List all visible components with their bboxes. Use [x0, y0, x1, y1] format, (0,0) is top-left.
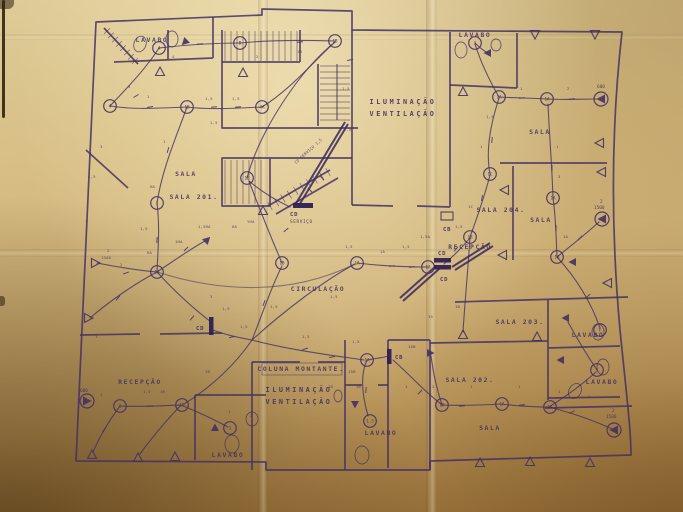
wire-annotation: 1,5 — [402, 244, 410, 249]
conductor-tick — [167, 147, 169, 153]
fan-blade-icon — [83, 397, 92, 406]
light-outlet-code: 1B — [184, 105, 190, 110]
shaft-title: VENTILAÇÃO — [266, 397, 333, 406]
wire-annotation: 1 — [518, 384, 521, 389]
switch-arrow-symbol — [569, 258, 577, 266]
wire-annotation: 1,5 — [302, 334, 310, 339]
shaft-title: ILUMINAÇÃO — [370, 97, 437, 106]
fan-blade-icon — [610, 426, 619, 435]
light-outlet-code: 1A — [554, 255, 560, 260]
wire-annotation: HA — [232, 224, 238, 229]
panel-label: CB — [443, 227, 451, 233]
wall-outlet-triangle — [156, 67, 165, 76]
conductor-tick — [459, 406, 465, 407]
light-outlet-code: 1B — [439, 403, 445, 408]
wall-outlet-triangle — [88, 450, 97, 459]
panel-label: CD — [438, 251, 446, 257]
panel-box — [441, 212, 453, 220]
wire-annotation: 1C — [468, 204, 474, 209]
room-label: LAVABO — [365, 429, 398, 437]
panel-sublabel: SERVIÇO — [290, 219, 313, 225]
light-outlet-code: 1C — [487, 172, 493, 177]
wire-annotation: 1,5 — [88, 174, 96, 179]
wire-annotation: 1,5 — [140, 226, 148, 231]
wall-outlet-triangle — [595, 139, 604, 148]
conductor-tick — [123, 272, 129, 274]
panel-bar — [209, 317, 214, 335]
wire-annotation: 1,5 — [240, 324, 248, 329]
wire-annotation: 1,5 — [330, 294, 338, 299]
fan-wattage-label: 600 — [597, 84, 605, 90]
room-label: LAVABO — [572, 331, 605, 339]
wire-annotation: 1,5 — [232, 96, 240, 101]
wire-annotation: 3 — [100, 144, 103, 149]
conductor-tick — [157, 237, 158, 243]
room-label: RECEPÇÃO — [118, 377, 162, 386]
room-label: SALA 204. — [476, 206, 525, 214]
light-outlet-code: 1,5 — [366, 419, 374, 424]
wire-annotation: HA — [147, 250, 153, 255]
fan-blade-icon — [597, 95, 606, 104]
conductor-tick — [147, 406, 153, 407]
wire-tick-marks — [102, 42, 590, 433]
panel-bar — [293, 203, 313, 208]
fan-wattage-label: 2 — [612, 408, 615, 414]
toilet-fixture — [491, 39, 501, 51]
wire-annotation: 2 — [107, 248, 110, 253]
light-outlet-code: 1A — [354, 261, 360, 266]
light-outlet-code: 1A — [550, 196, 556, 201]
conductor-tick — [147, 106, 153, 107]
wall-outlet-triangle — [459, 87, 468, 96]
panel-label: CD — [440, 277, 448, 283]
conductor-tick — [569, 411, 574, 414]
room-label: SALA — [530, 216, 552, 224]
shaft-title: VENTILAÇÃO — [370, 109, 437, 118]
room-label: SALA — [479, 424, 501, 432]
wire-annotation: 1,5 — [210, 120, 218, 125]
light-outlet-code: 1B — [244, 176, 250, 181]
wire-annotation: 15 — [428, 314, 434, 319]
wire-annotation: 1 — [163, 139, 166, 144]
conductor-tick — [133, 95, 138, 98]
room-label: COLUNA MONTANTE. — [257, 365, 344, 373]
room-label: SALA — [175, 170, 197, 178]
room-labels: LAVABOLAVABOSALASALASALA 201.SALA 204.RE… — [118, 31, 618, 459]
wire-annotation: YHA — [247, 219, 255, 224]
room-label: SALA — [529, 128, 551, 136]
room-label: SALA 203. — [495, 318, 544, 326]
wire-annotation: 1,5 — [143, 389, 151, 394]
wire-annotation: 3 — [558, 174, 561, 179]
wire-annotation: 1 — [147, 94, 150, 99]
panel-label: CB — [395, 355, 403, 361]
room-label: RECEPÇÃO — [448, 242, 492, 251]
wire-annotation: 1500 — [101, 255, 112, 260]
wire-annotation: 1,5 — [222, 306, 230, 311]
fan-wattage-label: 1500 — [606, 414, 617, 420]
panel-bar — [434, 258, 451, 263]
wire-annotation: 4 — [128, 84, 131, 89]
switch-arrow-symbol — [179, 37, 190, 48]
room-label: LAVABO — [212, 451, 245, 459]
panel-bar — [387, 349, 392, 364]
light-outlet-code: 1A — [364, 358, 370, 363]
wire-annotation: 1HA — [175, 239, 183, 244]
wire-annotation: 1B — [297, 49, 303, 54]
conductor-tick — [389, 266, 395, 267]
wire-annotation: 1,5 — [352, 339, 360, 344]
conductor-tick — [329, 356, 335, 357]
plumbing-fixtures — [132, 31, 609, 464]
wire-annotation: 1B — [205, 369, 211, 374]
wire-annotation: 3 — [210, 294, 213, 299]
wire-annotation: 1,5 — [205, 96, 213, 101]
conductor-tick — [569, 99, 575, 100]
wire-annotation: 1,5 — [455, 224, 463, 229]
room-label: LAVABO — [586, 378, 619, 386]
wire-annotation: 4 — [172, 54, 175, 59]
conductor-tick — [102, 428, 106, 433]
wire-annotation: 2 — [432, 384, 435, 389]
wire-annotation: 2 — [120, 262, 123, 267]
fan-wattage-label: 600 — [80, 388, 88, 394]
wire-annotation: 2 — [256, 54, 259, 59]
wire-annotation: 1B — [455, 304, 461, 309]
wire-annotation: 1 — [520, 86, 523, 91]
switch-arrow-symbol — [211, 424, 219, 432]
wall-outlet-triangle — [500, 186, 509, 195]
switch-arrow-symbol — [202, 234, 213, 245]
wire-annotation: 10B — [408, 344, 416, 349]
toilet-fixture — [455, 42, 467, 58]
conductor-tick — [229, 336, 235, 338]
switch-arrow-symbol — [562, 314, 570, 322]
conductor-tick — [519, 98, 525, 99]
wall-outlet-triangle — [85, 314, 94, 323]
wire-annotation: T.A — [344, 127, 352, 132]
toilet-fixture — [334, 390, 342, 402]
light-outlet-code: 1 — [229, 426, 232, 431]
switch-arrow-symbol — [351, 401, 359, 409]
light-outlet-code: 1A — [544, 97, 550, 102]
conductor-tick — [284, 228, 289, 232]
wall-outlet-triangle — [586, 458, 595, 467]
room-label: CIRCULAÇÃO — [291, 284, 345, 293]
shaft-title: ILUMINAÇÃO — [266, 385, 333, 394]
conductor-tick — [184, 247, 188, 251]
floor-plan-drawing: 4B1B41B4A1B11A1B1A1A1B1C1A1A11A1A1A1,511… — [0, 0, 683, 512]
panel-label: CD — [196, 326, 204, 332]
wire-annotation: 1B — [160, 389, 166, 394]
light-outlet-code: 1A — [154, 270, 160, 275]
conductor-tick — [418, 390, 422, 394]
conductor-tick — [302, 348, 308, 350]
wire-annotation: 1 — [405, 384, 408, 389]
switch-arrow-symbol — [557, 356, 565, 364]
wire-annotation: 1,5HA — [198, 224, 211, 229]
conductor-tick — [409, 267, 415, 268]
wall-outlet-triangle — [498, 251, 507, 260]
wire-annotation: 1 — [470, 384, 473, 389]
wire-annotation: 2 — [567, 86, 570, 91]
wall-outlet-triangle — [171, 452, 180, 461]
toilet-fixture — [355, 446, 369, 464]
light-outlet-code: 1B — [279, 261, 285, 266]
light-outlet-code: 1B — [467, 235, 473, 240]
room-label: SALA 201. — [169, 193, 218, 201]
wire-annotation: 1B — [356, 384, 362, 389]
conductor-tick — [297, 42, 303, 43]
light-outlet-code: 1A — [499, 402, 505, 407]
light-outlet-code: 1 — [156, 201, 159, 206]
photo-of-electrical-floor-plan: 4B1B41B4A1B11A1B1A1A1B1C1A1A11A1A1A1,511… — [0, 0, 683, 512]
room-label: LAVABO — [459, 31, 492, 39]
wire-annotation: 1 — [480, 144, 483, 149]
light-outlet-code: 1A — [425, 265, 431, 270]
light-outlet-symbols: 4B1B41B4A1B11A1B1A1A1B1C1A1A11A1A1A1,511… — [104, 35, 607, 435]
wire-annotation: CD SERVIÇO 1,5 — [293, 137, 323, 165]
wire-annotation: 1,5A — [420, 234, 431, 239]
wall-outlet-triangle — [603, 279, 612, 288]
wire-annotation: 1 — [558, 389, 561, 394]
wall-outlet-triangle — [533, 332, 542, 341]
wall-outlet-triangle — [239, 68, 248, 77]
conductor-tick — [519, 405, 525, 406]
wire-annotation: 1A — [563, 234, 569, 239]
wire-annotation: 1,5 — [345, 244, 353, 249]
conductor-tick — [190, 316, 194, 321]
room-label: SALA 202. — [445, 376, 494, 384]
switch-arrow-symbol — [484, 49, 492, 57]
wall-outlet-triangle — [134, 453, 143, 462]
wire-annotation: 1,5 — [342, 86, 350, 91]
light-outlet-code: 1B — [179, 403, 185, 408]
light-outlet-code: 1A — [496, 95, 502, 100]
wire-annotation: 1 — [556, 144, 559, 149]
conductor-tick — [263, 300, 265, 306]
conductor-tick — [197, 44, 203, 45]
wire-annotation: 1 — [100, 392, 103, 397]
room-label: LAVABO — [136, 36, 169, 44]
wall-outlet-triangle — [597, 168, 606, 177]
wire-annotation: 1,5 — [486, 114, 494, 119]
panel-label: CD — [290, 212, 298, 218]
light-outlet-code: 4A — [259, 105, 265, 110]
conductor-tick — [366, 387, 367, 393]
conductor-tick — [235, 107, 241, 108]
shaft-titles: ILUMINAÇÃOVENTILAÇÃOILUMINAÇÃOVENTILAÇÃO — [266, 97, 437, 406]
wire-annotation: 1,5 — [270, 304, 278, 309]
light-outlet-code: 1A — [547, 405, 553, 410]
fan-wattage-label: 2 — [600, 199, 603, 205]
wire-annotation: HA — [150, 184, 156, 189]
conductor-tick — [578, 236, 582, 240]
conductor-tick — [211, 107, 217, 108]
wire-annotation: 15B — [348, 369, 356, 374]
conductor-tick — [492, 137, 493, 143]
wire-annotation: 1A — [380, 249, 386, 254]
fan-wattage-label: 1500 — [594, 205, 605, 211]
wire-annotation: 1 — [228, 409, 231, 414]
light-outlet-code: 1B — [332, 39, 338, 44]
panel-bar — [434, 265, 451, 270]
